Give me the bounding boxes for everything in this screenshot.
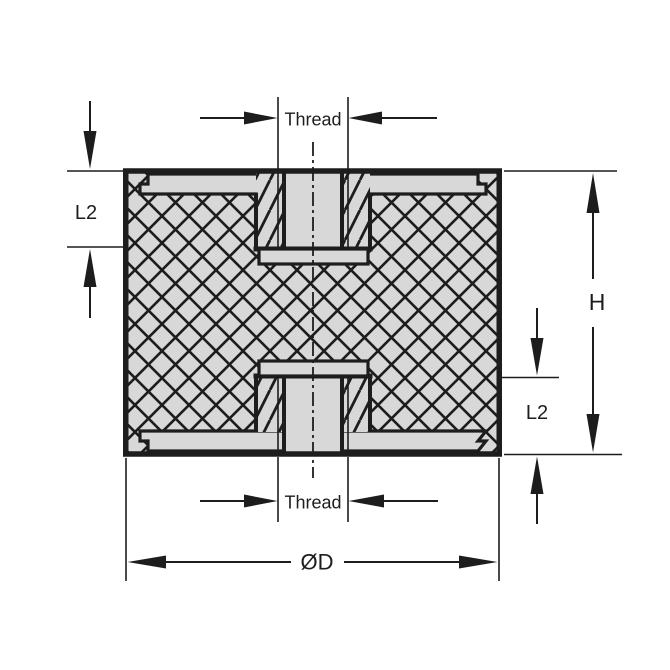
od-label: ØD [301, 550, 334, 575]
engineering-drawing-canvas: Thread Thread ØD H L2 [0, 0, 670, 670]
top-cup-wall-left-hatch [256, 173, 284, 249]
thread-bottom-label: Thread [284, 493, 341, 513]
bottom-cup-wall-right-hatch [342, 376, 370, 432]
h-label: H [589, 289, 606, 315]
l2-right-label: L2 [526, 402, 548, 424]
top-cup-wall-right-hatch [342, 173, 370, 249]
bottom-cup-wall-left-hatch [256, 376, 284, 432]
rubber-mount-section-drawing: Thread Thread ØD H L2 [0, 0, 670, 670]
thread-top-label: Thread [284, 110, 341, 130]
l2-left-label: L2 [75, 202, 97, 224]
